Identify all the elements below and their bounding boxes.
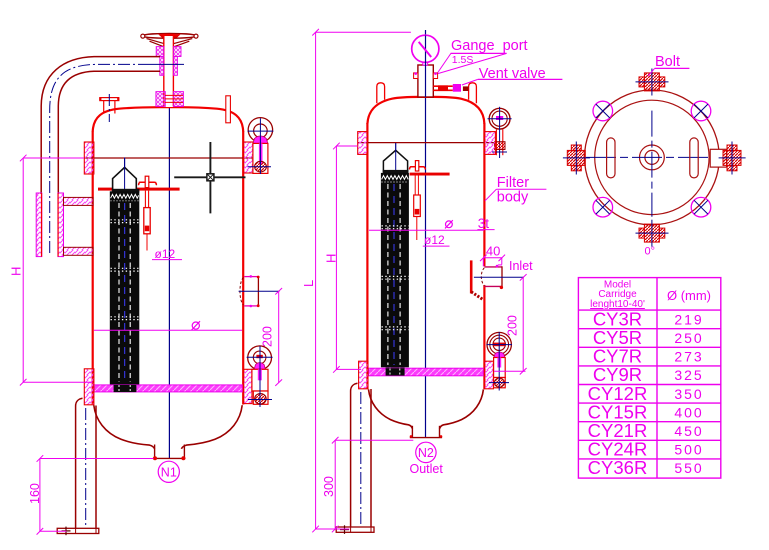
svg-text:Ø (mm): Ø (mm) (667, 288, 711, 303)
svg-text:Outlet: Outlet (410, 462, 444, 476)
svg-text:N1: N1 (161, 465, 177, 479)
svg-text:H: H (324, 254, 339, 263)
svg-text:350: 350 (674, 386, 703, 402)
svg-text:ø12: ø12 (424, 233, 445, 247)
svg-text:450: 450 (674, 423, 703, 439)
svg-text:500: 500 (674, 442, 703, 458)
svg-text:0°: 0° (645, 246, 656, 258)
svg-text:1.5S: 1.5S (452, 54, 474, 66)
svg-text:Gange port: Gange port (451, 38, 528, 54)
svg-text:ø12: ø12 (155, 247, 176, 261)
svg-text:40: 40 (486, 243, 500, 258)
svg-text:160: 160 (28, 483, 42, 504)
svg-text:Filter: Filter (497, 175, 529, 191)
svg-text:200: 200 (261, 326, 275, 347)
svg-text:Inlet: Inlet (509, 259, 533, 273)
svg-text:body: body (497, 189, 529, 205)
svg-text:3t: 3t (478, 216, 490, 231)
svg-text:Bolt: Bolt (655, 54, 680, 70)
svg-text:250: 250 (674, 330, 703, 346)
svg-text:N2: N2 (418, 446, 434, 460)
svg-text:200: 200 (506, 315, 520, 336)
svg-text:219: 219 (674, 311, 703, 327)
svg-text:L: L (301, 280, 316, 287)
svg-text:273: 273 (674, 349, 703, 365)
svg-text:CY36R: CY36R (588, 457, 648, 478)
svg-text:325: 325 (674, 367, 703, 383)
svg-text:550: 550 (674, 460, 703, 476)
svg-text:300: 300 (322, 476, 336, 497)
svg-text:H: H (9, 267, 24, 276)
svg-text:400: 400 (674, 404, 703, 420)
